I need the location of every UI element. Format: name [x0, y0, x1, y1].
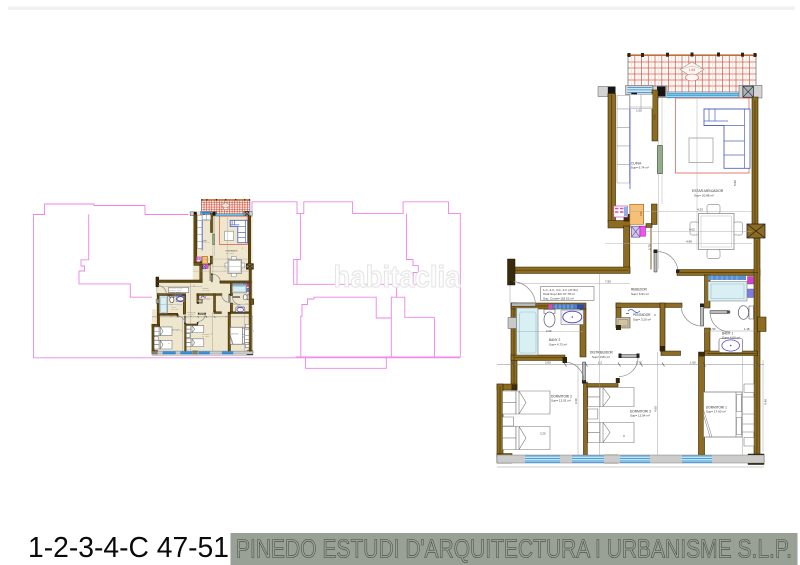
svg-text:Sup= 4.72 m²: Sup= 4.72 m²	[549, 343, 567, 347]
svg-text:1.18: 1.18	[744, 327, 750, 331]
svg-text:5.90: 5.90	[733, 180, 737, 186]
svg-text:1.55: 1.55	[689, 68, 695, 72]
svg-text:OO: OO	[639, 211, 643, 216]
svg-text:PENTADOR: PENTADOR	[633, 313, 651, 317]
svg-text:1-2-3-4-C 47-51: 1-2-3-4-C 47-51	[28, 532, 229, 564]
svg-text:4.60: 4.60	[653, 406, 657, 412]
svg-text:2.60: 2.60	[546, 329, 552, 333]
svg-text:1.05: 1.05	[636, 108, 642, 112]
svg-text:2.75: 2.75	[648, 244, 652, 250]
svg-text:Sup= 6.91 m²: Sup= 6.91 m²	[631, 292, 649, 296]
svg-text:Sup. Const= 118.52 m²: Sup. Const= 118.52 m²	[543, 296, 574, 300]
svg-text:1.70: 1.70	[636, 360, 642, 364]
svg-text:habitaclia: habitaclia	[334, 259, 462, 294]
svg-text:4.23: 4.23	[697, 207, 703, 211]
svg-text:Sup= 3.81 m²: Sup= 3.81 m²	[592, 355, 610, 359]
svg-text:4.41: 4.41	[653, 114, 657, 120]
svg-text:Sup= 6.74 m²: Sup= 6.74 m²	[631, 166, 649, 170]
svg-text:2.60: 2.60	[545, 360, 551, 364]
svg-text:Sup= 12.54 m²: Sup= 12.54 m²	[630, 414, 650, 418]
svg-text:BANY 2: BANY 2	[549, 338, 561, 342]
svg-text:ESTAR-MENJADOR: ESTAR-MENJADOR	[692, 189, 724, 193]
svg-text:7.59: 7.59	[605, 280, 611, 284]
svg-text:3.20: 3.20	[540, 432, 546, 436]
svg-text:4.49: 4.49	[764, 399, 768, 405]
svg-text:1.2: 1.2	[598, 360, 602, 364]
svg-text:1.60: 1.60	[690, 360, 696, 364]
svg-text:Sup= 12.01 m²: Sup= 12.01 m²	[551, 399, 571, 403]
svg-text:4.02: 4.02	[689, 228, 695, 232]
svg-text:Sup= 3.20 m²: Sup= 3.20 m²	[633, 317, 651, 321]
svg-text:Sup= 17.60 m²: Sup= 17.60 m²	[706, 410, 726, 414]
svg-text:DISTRIBUIDOR: DISTRIBUIDOR	[590, 351, 614, 355]
svg-text:REBEDOR: REBEDOR	[631, 288, 647, 292]
svg-text:Sup= 4.60 m²: Sup= 4.60 m²	[722, 335, 740, 339]
svg-text:4.99: 4.99	[686, 239, 692, 243]
svg-text:PINEDO ESTUDI D'ARQUITECTURA: PINEDO ESTUDI D'ARQUITECTURA I URBANISME…	[236, 534, 792, 564]
svg-text:3.30: 3.30	[574, 398, 578, 404]
svg-text:1.53: 1.53	[710, 327, 716, 331]
